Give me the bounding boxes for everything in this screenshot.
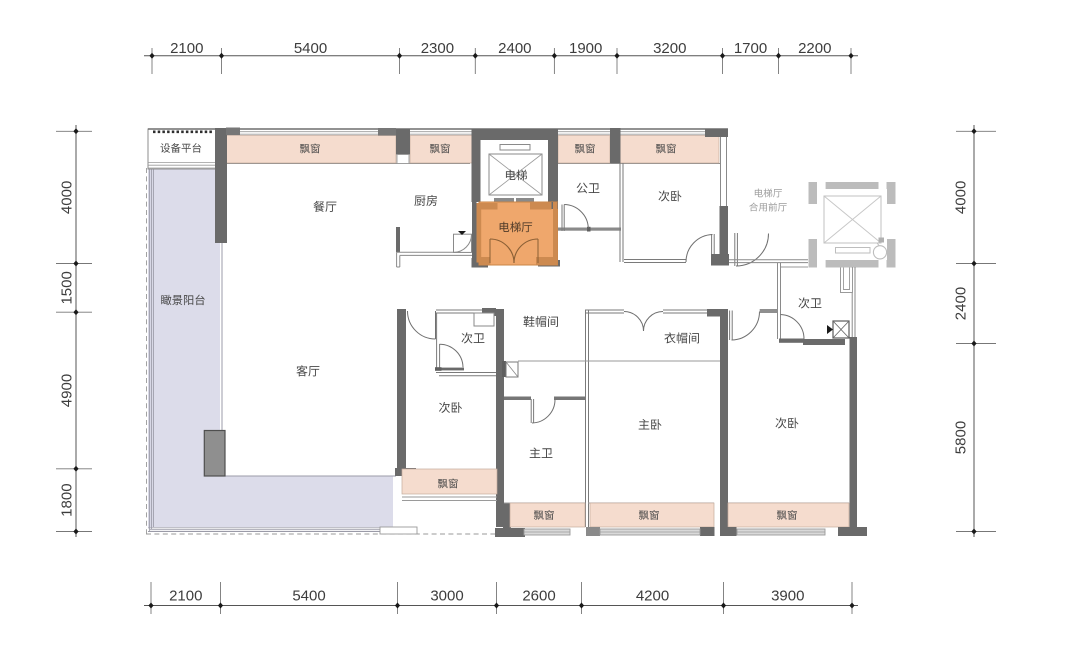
svg-text:2200: 2200 (798, 40, 831, 57)
svg-text:3000: 3000 (430, 588, 463, 605)
svg-text:1800: 1800 (59, 483, 76, 516)
svg-text:5800: 5800 (953, 421, 970, 454)
svg-text:2400: 2400 (498, 40, 531, 57)
svg-text:2300: 2300 (421, 40, 454, 57)
svg-text:4000: 4000 (59, 181, 76, 214)
svg-text:5400: 5400 (292, 588, 325, 605)
svg-text:1700: 1700 (734, 40, 767, 57)
svg-text:2600: 2600 (522, 588, 555, 605)
svg-text:4000: 4000 (953, 181, 970, 214)
svg-text:3900: 3900 (771, 588, 804, 605)
svg-text:4200: 4200 (636, 588, 669, 605)
svg-text:3200: 3200 (653, 40, 686, 57)
svg-text:2100: 2100 (170, 40, 203, 57)
svg-text:1500: 1500 (59, 271, 76, 304)
svg-text:5400: 5400 (294, 40, 327, 57)
svg-text:1900: 1900 (569, 40, 602, 57)
svg-text:4900: 4900 (59, 374, 76, 407)
svg-text:2400: 2400 (953, 287, 970, 320)
svg-text:2100: 2100 (169, 588, 202, 605)
